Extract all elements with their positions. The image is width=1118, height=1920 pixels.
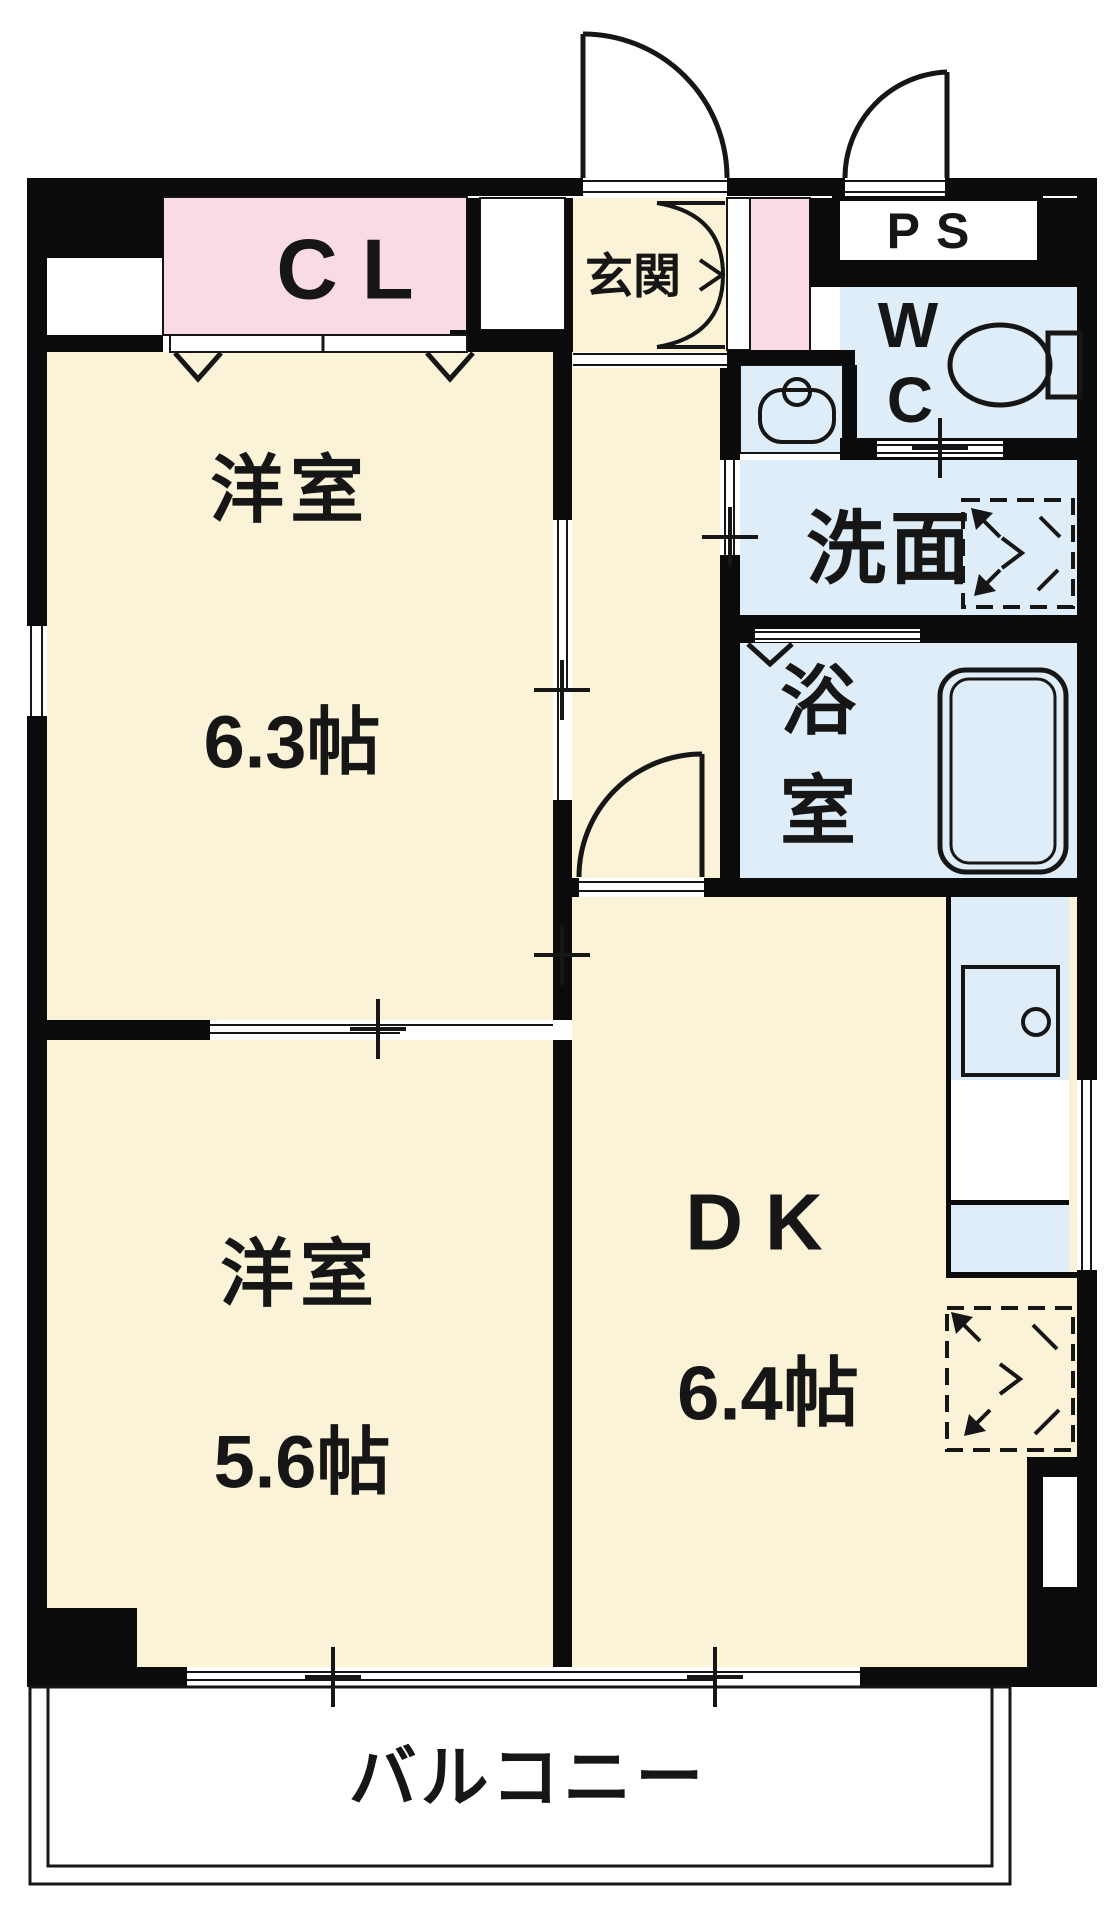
wc-label-line1: W [878,289,939,361]
entrance-label: 玄関 [585,251,681,304]
room-western-2 [47,1040,553,1667]
service-door-arc [845,72,947,178]
entrance-storage-box [480,198,565,330]
closet-sliding-door [170,335,467,352]
entrance-side-strip [727,198,750,350]
wc-label-line2: C [887,364,933,436]
western-room-1-size: 6.3帖 [204,701,381,784]
bathroom-label-char2: 室 [780,770,856,855]
closet-strip [750,198,810,352]
western-room-1-label: 洋室 [210,449,370,532]
floor-plan-svg: CL 玄関 PS W C 洗面 浴 室 洋室 6.3帖 洋室 5.6帖 DK 6… [0,0,1118,1920]
meter-box [47,258,149,335]
closet-label: CL [276,223,437,318]
room-wc [840,287,1077,438]
dk-label: DK [685,1178,845,1267]
dk-size: 6.4帖 [677,1352,859,1437]
washroom-label: 洗面 [806,505,974,594]
balcony-label: バルコニー [349,1740,708,1816]
western-room-2-size: 5.6帖 [214,1421,391,1504]
pipe-space-label: PS [887,203,986,259]
floor-plan-page: CL 玄関 PS W C 洗面 浴 室 洋室 6.3帖 洋室 5.6帖 DK 6… [0,0,1118,1920]
kitchen-counter-white [951,1080,1069,1200]
bathroom-label-char1: 浴 [780,660,857,745]
western-room-2-label: 洋室 [220,1233,380,1316]
room-hall [572,352,720,878]
entrance-door-arc [583,34,727,178]
